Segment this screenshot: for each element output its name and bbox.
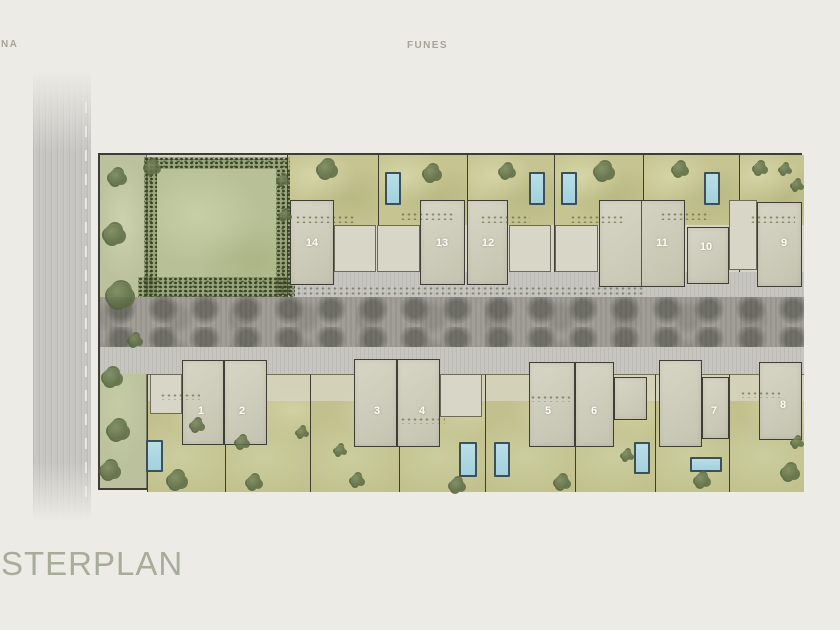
pool [634,442,650,474]
tree [236,436,248,448]
tree [278,175,288,185]
tree [754,162,766,174]
tree [318,160,336,178]
pool [459,442,477,477]
street-name-top: FUNES [407,40,448,51]
shrub-row [660,212,710,220]
tree [424,165,440,181]
tree [108,420,128,440]
pool [385,172,401,205]
tree [191,419,203,431]
patio [334,225,376,272]
pool [561,172,577,205]
lot-number-5: 5 [545,405,551,417]
house-divider [641,200,642,287]
tree [450,478,464,492]
patio [555,225,598,272]
lot-number-4: 4 [419,405,425,417]
house-2 [224,360,267,445]
house-5 [529,362,575,447]
patio [440,374,482,417]
patio [509,225,551,272]
shrub-row [530,395,570,402]
house-1 [182,360,224,445]
park-hedge-bottom [138,277,295,297]
shrub-row [400,212,455,220]
tree [673,162,687,176]
road-fade-top [33,62,91,152]
tree [168,471,186,489]
lot-number-7: 7 [711,405,717,417]
tree [297,427,307,437]
tree [129,334,141,346]
tree [103,368,121,386]
tree [500,164,514,178]
tree [247,475,261,489]
lot-number-8: 8 [780,399,786,411]
masterplan-image: NA FUNES 1413121110912345678 STERPLAN [0,0,840,630]
tree [622,450,632,460]
lot-number-3: 3 [374,405,380,417]
pool [690,457,722,472]
lot-number-14: 14 [306,237,318,249]
park-hedge-left [144,157,157,295]
tree [792,437,802,447]
pool [529,172,545,205]
patio [729,200,757,270]
shrub-row [295,215,355,223]
shrub-row [480,215,530,223]
shrub-row [400,417,445,424]
shrub-row [740,391,780,398]
pool [704,172,720,205]
tree [595,162,613,180]
tree [101,461,119,479]
tree [109,169,125,185]
page-title: STERPLAN [1,545,183,583]
house-4 [397,359,440,447]
street-name-left: NA [1,39,18,50]
tree [104,224,124,244]
house-6 [614,377,647,420]
lot-number-12: 12 [482,237,494,249]
tree [555,475,569,489]
lot-number-13: 13 [436,237,448,249]
house-3 [354,359,397,447]
road-center-dash [85,102,87,502]
lot-number-9: 9 [781,237,787,249]
lot-number-1: 1 [198,405,204,417]
lot-number-2: 2 [239,405,245,417]
tree [145,160,159,174]
lot-number-11: 11 [656,237,668,249]
house-7 [659,360,702,447]
tree [780,164,790,174]
side-street [33,62,91,532]
shrub-row [290,286,645,295]
house-10 [687,227,729,284]
tree [792,180,802,190]
tree [351,474,363,486]
shrub-row [160,393,200,400]
site-plan: 1413121110912345678 [98,153,802,490]
tree [335,445,345,455]
lot-number-10: 10 [700,241,712,253]
shrub-row [750,215,795,223]
park-hedge-top [144,157,290,169]
tree [107,282,133,308]
patio [377,225,420,272]
central-road [100,297,804,347]
road-fade-bottom [33,462,91,532]
pool [146,440,163,472]
tree [782,464,798,480]
tree [280,210,290,220]
shrub-row [570,215,625,223]
pool [494,442,510,477]
tree [695,473,709,487]
lot-number-6: 6 [591,405,597,417]
